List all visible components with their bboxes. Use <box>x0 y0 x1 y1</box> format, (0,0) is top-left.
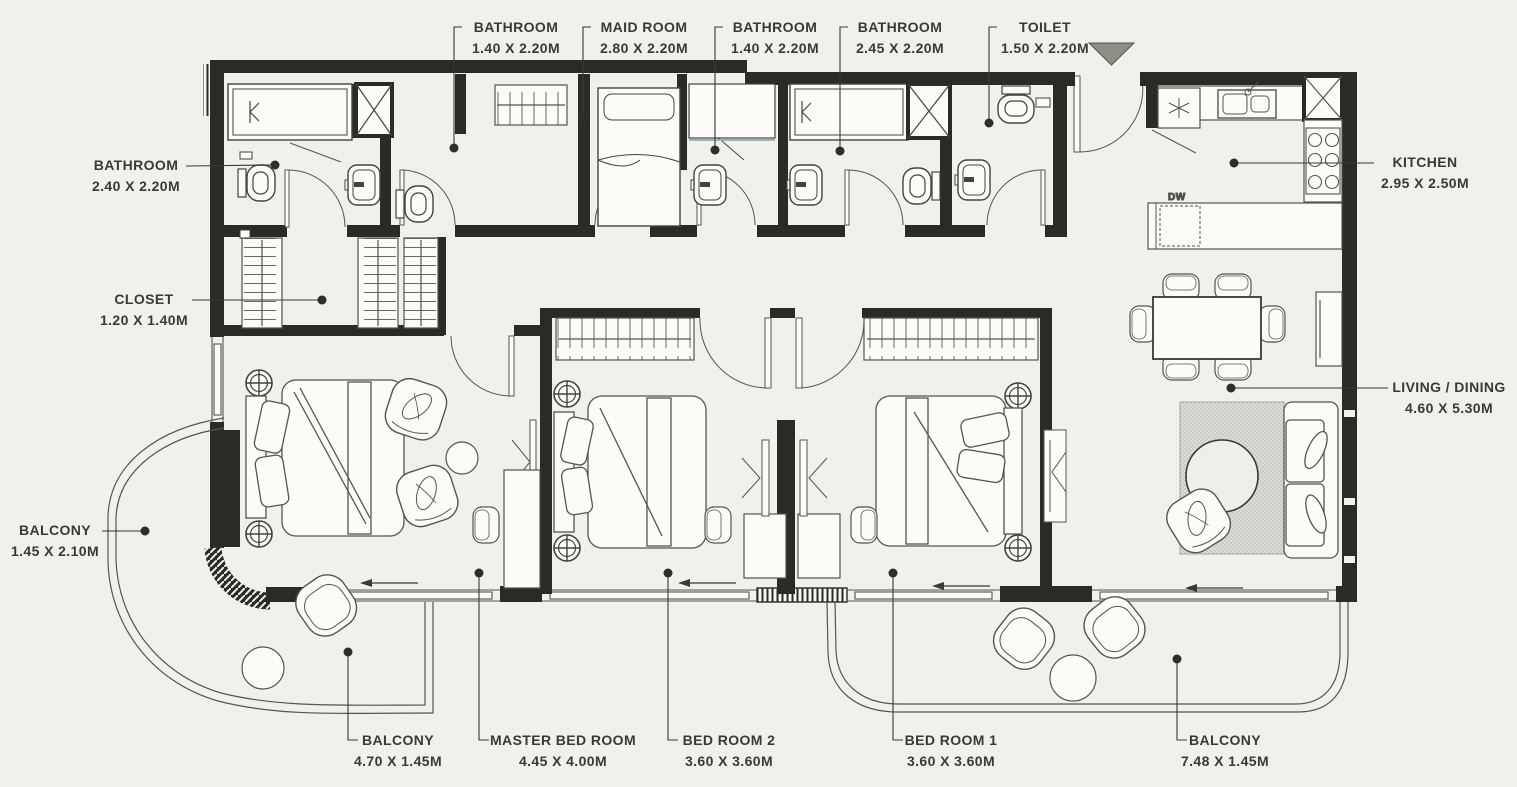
toilet-icon <box>903 168 940 204</box>
desk-chair <box>705 507 731 543</box>
bed <box>554 396 706 548</box>
label-living-dining: LIVING / DINING 4.60 X 5.30M <box>1390 377 1508 419</box>
desk-chair <box>473 507 499 543</box>
room-name: BALCONY <box>10 520 100 541</box>
floor-plan-drawing: DW <box>0 0 1517 787</box>
room-name: BATHROOM <box>710 17 840 38</box>
room-dims: 2.45 X 2.20M <box>835 38 965 59</box>
bedroom-1-tv <box>1044 430 1066 522</box>
label-bedroom-2: BED ROOM 2 3.60 X 3.60M <box>680 730 778 772</box>
door-toilet <box>987 170 1045 225</box>
room-dims: 1.50 X 2.20M <box>984 38 1106 59</box>
sink-icon <box>691 165 726 205</box>
dining-table <box>1153 297 1261 359</box>
living-furniture <box>1130 274 1342 559</box>
ceiling-light-icon <box>554 535 580 561</box>
room-dims: 1.45 X 2.10M <box>10 541 100 562</box>
balcony-chair <box>288 567 364 644</box>
room-dims: 3.60 X 3.60M <box>902 751 1000 772</box>
door-master <box>451 336 514 396</box>
master-bedroom-furniture <box>246 370 540 588</box>
desk <box>504 470 540 588</box>
shaft-icon <box>356 84 392 136</box>
wardrobe-bedroom-1 <box>864 318 1038 360</box>
room-dims: 3.60 X 3.60M <box>680 751 778 772</box>
sink-icon <box>787 165 822 205</box>
room-name: TOILET <box>984 17 1106 38</box>
label-bathroom-top-3: BATHROOM 2.45 X 2.20M <box>835 17 965 59</box>
room-name: CLOSET <box>98 289 190 310</box>
room-dims: 4.60 X 5.30M <box>1390 398 1508 419</box>
label-bathroom-top-2: BATHROOM 1.40 X 2.20M <box>710 17 840 59</box>
label-bathroom-top-1: BATHROOM 1.40 X 2.20M <box>452 17 580 59</box>
sofa <box>1284 402 1338 558</box>
balcony-chair <box>986 600 1063 677</box>
room-name: MASTER BED ROOM <box>488 730 638 751</box>
room-dims: 7.48 X 1.45M <box>1176 751 1274 772</box>
window-living <box>1092 590 1336 601</box>
bedroom-2-furniture <box>554 381 786 578</box>
ceiling-light-icon <box>246 521 272 547</box>
door-kitchen <box>1152 130 1196 153</box>
toilet-icon <box>396 186 433 222</box>
room-dims: 1.40 X 2.20M <box>710 38 840 59</box>
fridge-icon <box>1158 88 1200 128</box>
label-maid-room: MAID ROOM 2.80 X 2.20M <box>578 17 710 59</box>
sink-icon <box>345 165 380 205</box>
label-kitchen: KITCHEN 2.95 X 2.50M <box>1376 152 1474 194</box>
ceiling-light-icon <box>1005 535 1031 561</box>
room-name: KITCHEN <box>1376 152 1474 173</box>
room-name: BATHROOM <box>452 17 580 38</box>
floor-plan: DW <box>0 0 1517 787</box>
room-name: BED ROOM 1 <box>902 730 1000 751</box>
shaft-icon <box>908 84 950 138</box>
label-balcony-bottom-right: BALCONY 7.48 X 1.45M <box>1176 730 1274 772</box>
master-bed <box>246 380 404 536</box>
room-name: BALCONY <box>352 730 444 751</box>
window-left-balcony <box>212 337 223 422</box>
sink-icon <box>955 160 990 200</box>
door-bathroom-left <box>285 143 345 227</box>
balcony-table <box>242 647 284 689</box>
door-bathroom-4 <box>845 170 903 225</box>
bedroom-1-furniture <box>798 383 1066 578</box>
ceiling-light-icon <box>554 381 580 407</box>
balcony-table <box>1050 655 1096 701</box>
label-balcony-bottom-left: BALCONY 4.70 X 1.45M <box>352 730 444 772</box>
label-master-bedroom: MASTER BED ROOM 4.45 X 4.00M <box>488 730 638 772</box>
room-name: LIVING / DINING <box>1390 377 1508 398</box>
side-table <box>446 442 478 474</box>
desk <box>798 514 840 578</box>
room-name: BATHROOM <box>835 17 965 38</box>
room-dims: 1.20 X 1.40M <box>98 310 190 331</box>
maid-bed <box>598 88 680 226</box>
room-name: BED ROOM 2 <box>680 730 778 751</box>
tv-console <box>1316 292 1342 366</box>
room-dims: 4.45 X 4.00M <box>488 751 638 772</box>
mirror <box>800 440 827 516</box>
label-closet: CLOSET 1.20 X 1.40M <box>98 289 190 331</box>
room-dims: 2.40 X 2.20M <box>88 176 184 197</box>
label-bedroom-1: BED ROOM 1 3.60 X 3.60M <box>902 730 1000 772</box>
bed <box>876 396 1022 546</box>
room-dims: 2.80 X 2.20M <box>578 38 710 59</box>
door-bedroom-2 <box>700 318 771 388</box>
room-dims: 1.40 X 2.20M <box>452 38 580 59</box>
bathroom-fixtures <box>228 84 1050 238</box>
door-bedroom-1 <box>796 318 864 388</box>
mirror <box>742 440 769 516</box>
shaft-icon <box>1304 76 1342 120</box>
toilet-icon <box>238 165 275 201</box>
room-name: BATHROOM <box>88 155 184 176</box>
ceiling-light-icon <box>246 370 272 396</box>
room-dims: 4.70 X 1.45M <box>352 751 444 772</box>
entry-door <box>1067 72 1148 152</box>
label-toilet: TOILET 1.50 X 2.20M <box>984 17 1106 59</box>
window-bedroom-1 <box>847 590 1000 601</box>
dishwasher-label: DW <box>1168 192 1186 203</box>
dining-set <box>1130 274 1285 380</box>
ceiling-light-icon <box>1005 383 1031 409</box>
toilet-icon <box>998 86 1034 123</box>
room-dims: 2.95 X 2.50M <box>1376 173 1474 194</box>
desk-chair <box>851 507 877 543</box>
desk <box>744 514 786 578</box>
label-balcony-left: BALCONY 1.45 X 2.10M <box>10 520 100 562</box>
window-bedroom-2 <box>542 590 757 601</box>
room-name: BALCONY <box>1176 730 1274 751</box>
label-bathroom-left: BATHROOM 2.40 X 2.20M <box>88 155 184 197</box>
wardrobe-bedroom-2 <box>556 318 694 360</box>
room-name: MAID ROOM <box>578 17 710 38</box>
